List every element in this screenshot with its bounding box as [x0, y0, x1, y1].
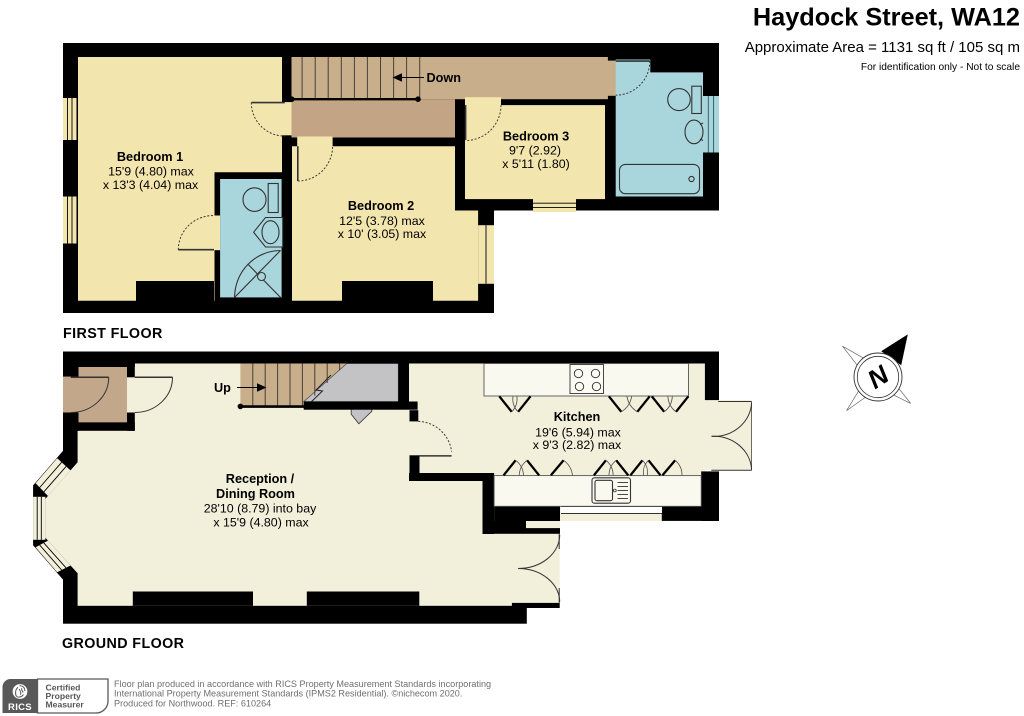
- svg-text:x 15'9 (4.80) max: x 15'9 (4.80) max: [213, 516, 309, 530]
- svg-text:Haydock Street, WA12: Haydock Street, WA12: [753, 3, 1020, 31]
- svg-text:FIRST FLOOR: FIRST FLOOR: [63, 326, 163, 342]
- svg-text:x 13'3 (4.04) max: x 13'3 (4.04) max: [103, 178, 199, 192]
- svg-text:x 10' (3.05) max: x 10' (3.05) max: [338, 227, 427, 241]
- svg-text:Floor plan produced in accorda: Floor plan produced in accordance with R…: [114, 679, 491, 689]
- svg-text:Dining Room: Dining Room: [216, 487, 295, 501]
- svg-text:9'7 (2.92): 9'7 (2.92): [509, 144, 561, 158]
- svg-text:Reception /: Reception /: [226, 472, 295, 486]
- svg-text:International Property Measure: International Property Measurement Stand…: [114, 689, 462, 699]
- svg-text:x 5'11 (1.80): x 5'11 (1.80): [502, 157, 570, 171]
- svg-text:28'10 (8.79) into bay: 28'10 (8.79) into bay: [204, 502, 317, 516]
- svg-text:15'9 (4.80) max: 15'9 (4.80) max: [108, 165, 195, 179]
- svg-text:19'6 (5.94) max: 19'6 (5.94) max: [535, 425, 622, 439]
- svg-text:RICS: RICS: [8, 702, 32, 713]
- svg-text:Produced for Northwood. REF:: Produced for Northwood. REF: 610264: [114, 698, 271, 708]
- svg-text:Down: Down: [427, 71, 462, 85]
- svg-text:Up: Up: [214, 381, 231, 395]
- svg-text:12'5 (3.78) max: 12'5 (3.78) max: [339, 214, 426, 228]
- svg-text:Bedroom 2: Bedroom 2: [348, 199, 414, 213]
- svg-text:GROUND FLOOR: GROUND FLOOR: [62, 636, 185, 652]
- svg-text:Measurer: Measurer: [46, 700, 85, 710]
- svg-text:For identification only - Not: For identification only - Not to scale: [861, 62, 1020, 73]
- svg-text:Bedroom 3: Bedroom 3: [503, 130, 569, 144]
- svg-text:x 9'3 (2.82) max: x 9'3 (2.82) max: [533, 438, 622, 452]
- svg-text:Bedroom 1: Bedroom 1: [117, 150, 183, 164]
- svg-text:Approximate Area = 1131 sq ft: Approximate Area = 1131 sq ft / 105 sq m: [745, 39, 1020, 56]
- svg-text:Kitchen: Kitchen: [554, 410, 601, 424]
